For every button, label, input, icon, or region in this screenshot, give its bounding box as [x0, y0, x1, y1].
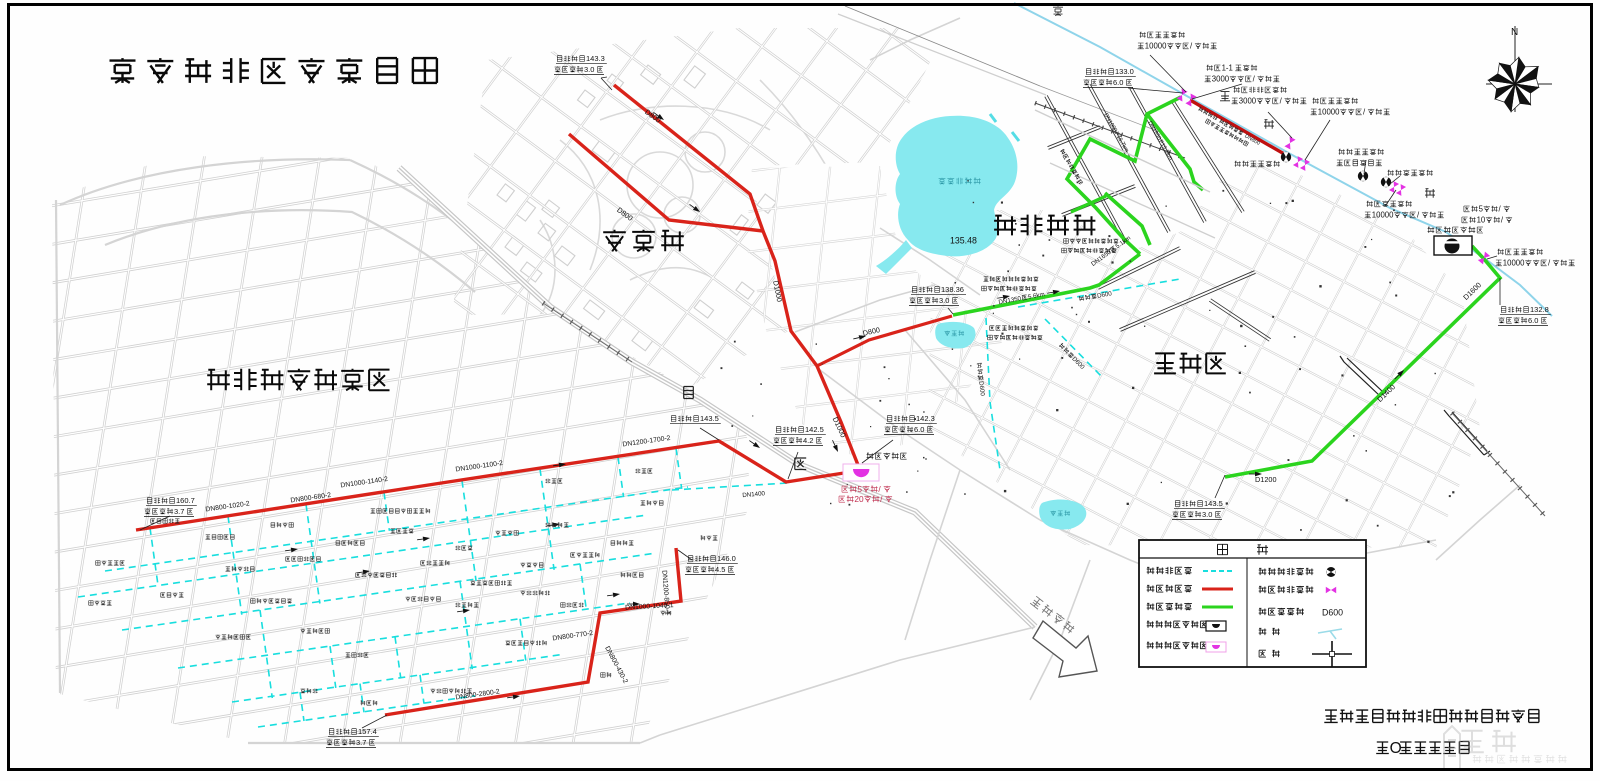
svg-text:3.7: 3.7 [356, 738, 366, 747]
svg-text:4.2: 4.2 [803, 436, 813, 445]
svg-text:D1200: D1200 [1255, 475, 1277, 484]
svg-text:3000: 3000 [1212, 75, 1230, 84]
svg-text:133.0: 133.0 [1115, 67, 1134, 76]
svg-text:6.0: 6.0 [1528, 316, 1538, 325]
svg-text:3000: 3000 [1239, 97, 1257, 106]
svg-text:3.0: 3.0 [1202, 510, 1212, 519]
svg-text:143.5: 143.5 [700, 414, 719, 423]
svg-text:5: 5 [857, 484, 862, 494]
svg-text:10000: 10000 [1318, 108, 1340, 117]
svg-text:143.3: 143.3 [586, 54, 605, 63]
svg-text:160.7: 160.7 [176, 496, 195, 505]
svg-text:4.5: 4.5 [715, 565, 725, 574]
svg-text:10000: 10000 [1503, 259, 1525, 268]
svg-text:143.5: 143.5 [1204, 499, 1223, 508]
svg-text:20: 20 [854, 494, 864, 504]
svg-text:142.3: 142.3 [916, 414, 935, 423]
svg-text:3.7: 3.7 [174, 507, 184, 516]
svg-text:146.0: 146.0 [717, 554, 736, 563]
svg-text:6.0: 6.0 [1113, 78, 1123, 87]
svg-text:O: O [1390, 740, 1402, 757]
svg-text:6.0: 6.0 [914, 425, 924, 434]
svg-text:D600: D600 [1322, 607, 1343, 617]
svg-text:138.36: 138.36 [941, 285, 964, 294]
svg-text:10000: 10000 [1145, 42, 1167, 51]
svg-text:5: 5 [1479, 205, 1484, 214]
svg-text:3.0: 3.0 [584, 65, 594, 74]
svg-text:N: N [1511, 27, 1518, 38]
svg-text:142.5: 142.5 [805, 425, 824, 434]
svg-text:3.0: 3.0 [939, 296, 949, 305]
svg-text:10000: 10000 [1372, 211, 1394, 220]
svg-text:132.8: 132.8 [1530, 305, 1549, 314]
svg-text:157.4: 157.4 [358, 727, 377, 736]
svg-text:135.48: 135.48 [950, 235, 977, 245]
svg-text:10: 10 [1477, 216, 1486, 225]
svg-text:1-1: 1-1 [1222, 64, 1233, 73]
